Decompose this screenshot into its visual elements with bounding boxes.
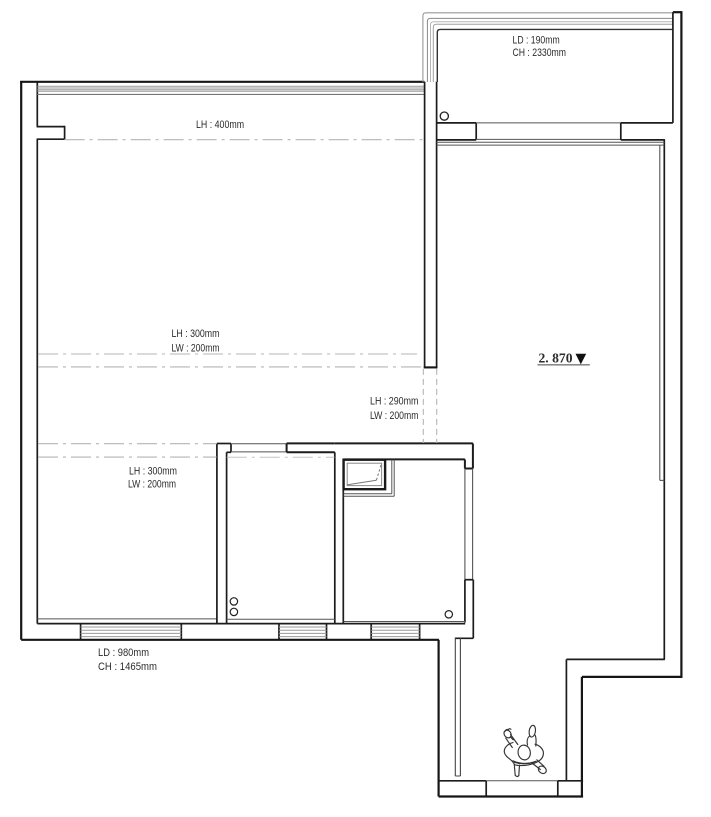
- svg-text:LH : 400mm: LH : 400mm: [196, 119, 244, 131]
- svg-text:LD : 980mm: LD : 980mm: [98, 647, 149, 659]
- svg-text:2. 870: 2. 870: [539, 351, 573, 366]
- svg-text:LW : 200mm: LW : 200mm: [172, 343, 220, 355]
- svg-text:LH : 300mm: LH : 300mm: [129, 466, 177, 478]
- svg-text:CH : 2330mm: CH : 2330mm: [513, 47, 567, 59]
- svg-text:LW : 200mm: LW : 200mm: [370, 410, 418, 422]
- svg-text:LD : 190mm: LD : 190mm: [513, 35, 560, 47]
- svg-text:LH : 300mm: LH : 300mm: [172, 328, 220, 340]
- svg-text:LW : 200mm: LW : 200mm: [128, 479, 176, 491]
- svg-text:CH : 1465mm: CH : 1465mm: [98, 661, 157, 673]
- svg-text:LH : 290mm: LH : 290mm: [370, 395, 418, 407]
